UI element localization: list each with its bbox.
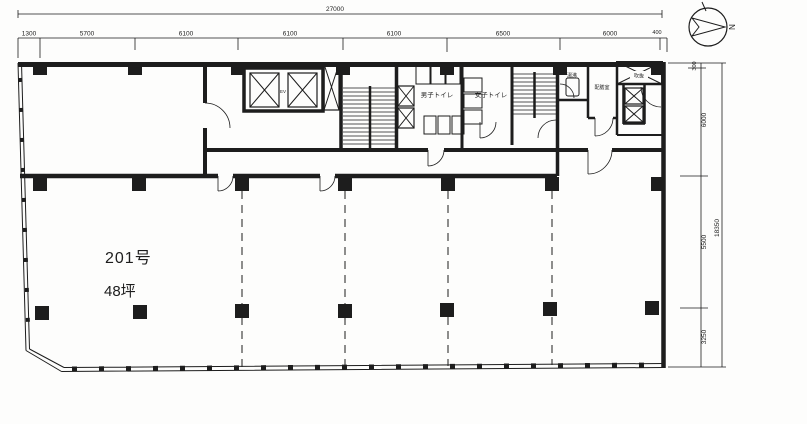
top-dimension-lines: 27000 1300 5700 6100 6100 6100 6500 6000… <box>18 6 667 58</box>
dim-top-seg-3: 6100 <box>283 31 298 38</box>
dim-top-seg-1: 5700 <box>80 31 95 38</box>
kettle-label: 湯沸 <box>567 72 577 79</box>
core-walls <box>20 62 665 176</box>
womens-toilet: 女子トイレ <box>464 78 507 124</box>
dim-top-seg-6: 6000 <box>603 31 618 38</box>
mens-toilet: 男子トイレ <box>416 66 464 134</box>
womens-toilet-label: 女子トイレ <box>475 90 508 99</box>
dim-right-seg-3: 3250 <box>701 329 708 344</box>
dim-total-right: 18350 <box>714 219 721 237</box>
north-arrow: N <box>689 2 736 46</box>
pantry-label: 配膳室 <box>594 84 609 91</box>
room-labels: 201号 48坪 <box>104 249 152 300</box>
stair-2 <box>513 72 556 118</box>
stair-1 <box>343 86 395 148</box>
right-dimension-lines: 300 6000 5500 3250 18350 <box>668 61 726 367</box>
dim-right-seg-1: 6000 <box>701 112 708 127</box>
bay-dashed-lines <box>242 191 552 368</box>
mens-toilet-label: 男子トイレ <box>421 91 454 99</box>
room-area-label: 48坪 <box>104 283 136 300</box>
dim-top-seg-4: 6100 <box>387 31 402 38</box>
dim-top-seg-2: 6100 <box>179 31 194 38</box>
dim-right-seg-0: 300 <box>692 61 698 70</box>
floor-plan-sheet: 27000 1300 5700 6100 6100 6100 6500 6000… <box>0 0 807 424</box>
north-label: N <box>727 24 736 30</box>
dim-top-seg-7: 400 <box>652 30 661 36</box>
dim-right-seg-2: 5500 <box>701 234 708 249</box>
room-number-label: 201号 <box>105 249 152 267</box>
dim-total-top: 27000 <box>326 6 344 13</box>
dim-top-seg-5: 6500 <box>496 31 511 38</box>
elevator-label: EV <box>280 89 286 94</box>
floor-plan-svg: 27000 1300 5700 6100 6100 6100 6500 6000… <box>0 0 807 424</box>
void-label: 吹抜 <box>634 73 644 80</box>
dim-top-seg-0: 1300 <box>22 31 37 38</box>
pantry-room: 配膳室 <box>594 84 609 91</box>
